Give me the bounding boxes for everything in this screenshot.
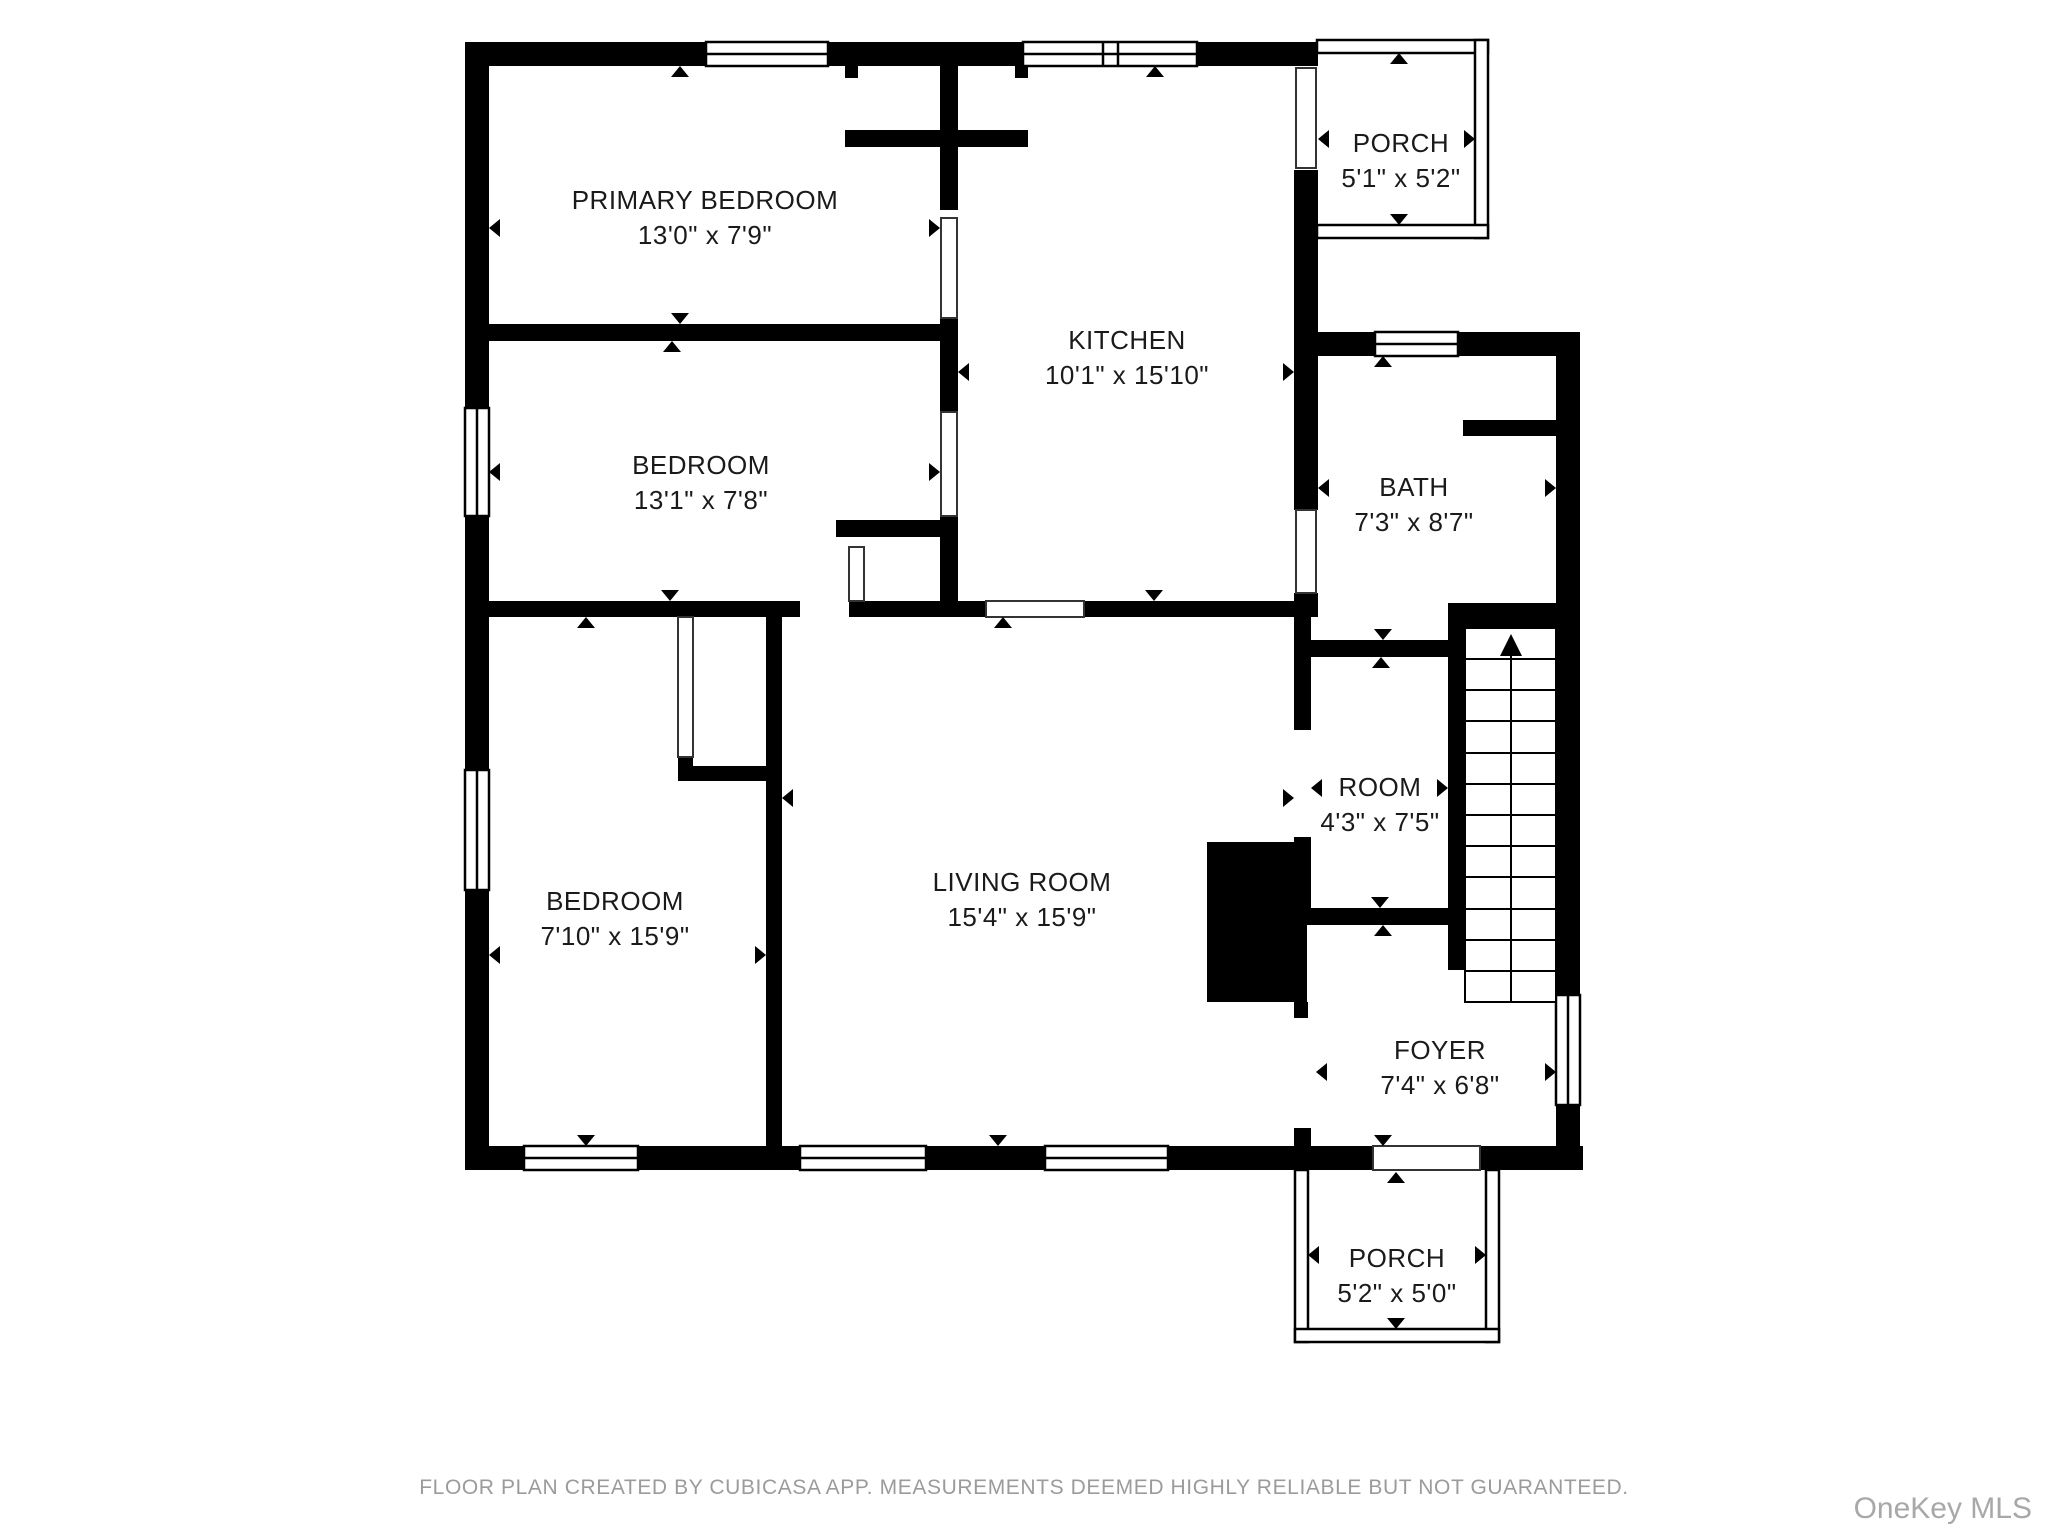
- room-name: ROOM: [1320, 770, 1439, 805]
- room-dimensions: 7'10" x 15'9": [540, 919, 689, 954]
- room-name: FOYER: [1380, 1033, 1499, 1068]
- staircase: [1465, 628, 1556, 1002]
- room-label-bath: BATH 7'3" x 8'7": [1354, 470, 1473, 540]
- room-dimensions: 5'1" x 5'2": [1341, 161, 1460, 196]
- room-dimensions: 13'0" x 7'9": [572, 218, 839, 253]
- fireplace: [1207, 842, 1307, 1002]
- footer-disclaimer: FLOOR PLAN CREATED BY CUBICASA APP. MEAS…: [0, 1476, 2048, 1500]
- room-label-foyer: FOYER 7'4" x 6'8": [1380, 1033, 1499, 1103]
- room-name: PORCH: [1341, 126, 1460, 161]
- room-name: PORCH: [1337, 1241, 1456, 1276]
- room-label-porch-lower: PORCH 5'2" x 5'0": [1337, 1241, 1456, 1311]
- room-dimensions: 15'4" x 15'9": [933, 900, 1112, 935]
- room-name: BEDROOM: [540, 884, 689, 919]
- room-label-porch-upper: PORCH 5'1" x 5'2": [1341, 126, 1460, 196]
- room-dimensions: 5'2" x 5'0": [1337, 1276, 1456, 1311]
- room-name: PRIMARY BEDROOM: [572, 183, 839, 218]
- room-dimensions: 7'3" x 8'7": [1354, 505, 1473, 540]
- room-dimensions: 10'1" x 15'10": [1045, 358, 1209, 393]
- mls-watermark: OneKey MLS: [1854, 1492, 2032, 1526]
- room-dimensions: 4'3" x 7'5": [1320, 805, 1439, 840]
- room-label-room: ROOM 4'3" x 7'5": [1320, 770, 1439, 840]
- floorplan-graphic: [0, 0, 2048, 1536]
- room-label-bedroom-2: BEDROOM 13'1" x 7'8": [632, 448, 770, 518]
- room-name: LIVING ROOM: [933, 865, 1112, 900]
- room-label-primary-bedroom: PRIMARY BEDROOM 13'0" x 7'9": [572, 183, 839, 253]
- room-label-kitchen: KITCHEN 10'1" x 15'10": [1045, 323, 1209, 393]
- room-name: BATH: [1354, 470, 1473, 505]
- room-dimensions: 7'4" x 6'8": [1380, 1068, 1499, 1103]
- room-name: BEDROOM: [632, 448, 770, 483]
- room-dimensions: 13'1" x 7'8": [632, 483, 770, 518]
- room-name: KITCHEN: [1045, 323, 1209, 358]
- room-label-bedroom-3: BEDROOM 7'10" x 15'9": [540, 884, 689, 954]
- room-label-living-room: LIVING ROOM 15'4" x 15'9": [933, 865, 1112, 935]
